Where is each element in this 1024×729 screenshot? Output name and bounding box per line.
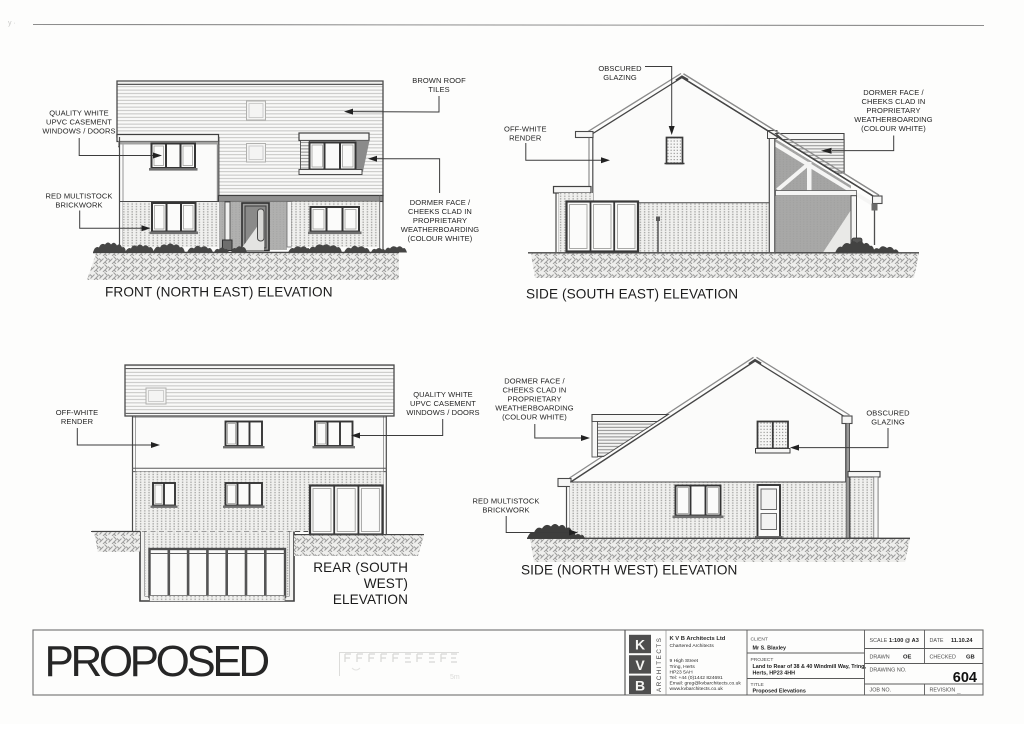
svg-text:SIDE (SOUTH EAST) ELEVATION: SIDE (SOUTH EAST) ELEVATION: [526, 287, 738, 302]
svg-text:WEATHERBOARDING: WEATHERBOARDING: [495, 403, 574, 412]
svg-text:REVISION: REVISION: [930, 688, 956, 694]
svg-text:SIDE (NORTH WEST) ELEVATION: SIDE (NORTH WEST) ELEVATION: [521, 563, 737, 578]
svg-text:_: _: [956, 688, 961, 695]
svg-text:(COLOUR WHITE): (COLOUR WHITE): [861, 124, 926, 133]
svg-text:DRAWN: DRAWN: [870, 655, 890, 661]
svg-text:QUALITY WHITE: QUALITY WHITE: [413, 390, 473, 399]
svg-text:QUALITY WHITE: QUALITY WHITE: [49, 108, 109, 117]
svg-text:11.10.24: 11.10.24: [951, 638, 973, 644]
svg-text:BROWN ROOF: BROWN ROOF: [412, 76, 466, 85]
svg-text:DORMER FACE /: DORMER FACE /: [863, 88, 924, 97]
svg-text:5m: 5m: [450, 674, 460, 681]
svg-text:CLIENT: CLIENT: [751, 637, 768, 643]
svg-text:RED MULTISTOCK: RED MULTISTOCK: [473, 496, 540, 505]
svg-text:WINDOWS / DOORS: WINDOWS / DOORS: [406, 408, 479, 417]
svg-text:DORMER FACE /: DORMER FACE /: [504, 376, 565, 385]
svg-text:PROPRIETARY: PROPRIETARY: [413, 216, 467, 225]
svg-text:Tel: +44 (0)1442 824691: Tel: +44 (0)1442 824691: [670, 675, 723, 681]
svg-text:REAR (SOUTH: REAR (SOUTH: [313, 560, 408, 575]
svg-text:K V B Architects Ltd: K V B Architects Ltd: [670, 636, 726, 642]
svg-text:DORMER FACE /: DORMER FACE /: [410, 198, 471, 207]
svg-text:RED MULTISTOCK: RED MULTISTOCK: [46, 191, 113, 200]
svg-text:PROJECT: PROJECT: [751, 657, 774, 663]
svg-text:CHECKED: CHECKED: [930, 655, 956, 661]
svg-text:BRICKWORK: BRICKWORK: [482, 505, 529, 514]
svg-text:CHEEKS CLAD IN: CHEEKS CLAD IN: [862, 97, 926, 106]
svg-text:UPVC CASEMENT: UPVC CASEMENT: [46, 117, 112, 126]
svg-text:OBSCURED: OBSCURED: [598, 64, 642, 73]
svg-text:DRAWING NO.: DRAWING NO.: [870, 668, 907, 674]
svg-text:Proposed Elevations: Proposed Elevations: [753, 689, 806, 695]
svg-text:CHEEKS CLAD IN: CHEEKS CLAD IN: [408, 207, 472, 216]
svg-text:Chartered Architects: Chartered Architects: [670, 643, 715, 649]
svg-text:www.kvbarchitects.co.uk: www.kvbarchitects.co.uk: [670, 686, 724, 692]
svg-text:PROPOSED: PROPOSED: [45, 637, 269, 686]
svg-text:WEATHERBOARDING: WEATHERBOARDING: [401, 225, 480, 234]
svg-text:WEATHERBOARDING: WEATHERBOARDING: [854, 115, 933, 124]
svg-text:K: K: [635, 637, 645, 653]
svg-text:Email: greg@kvbarchitects.co.u: Email: greg@kvbarchitects.co.uk: [670, 681, 742, 687]
svg-text:9 High Street: 9 High Street: [670, 658, 699, 664]
svg-text:CHEEKS CLAD IN: CHEEKS CLAD IN: [503, 385, 567, 394]
svg-text:TILES: TILES: [428, 85, 449, 94]
svg-text:OE: OE: [903, 655, 912, 661]
svg-text:DATE: DATE: [930, 638, 944, 644]
svg-text:JOB NO.: JOB NO.: [870, 688, 892, 694]
svg-text:Land to Rear of 38 & 40 Windmi: Land to Rear of 38 & 40 Windmill Way, Tr…: [753, 664, 867, 670]
svg-text:PROPRIETARY: PROPRIETARY: [507, 394, 561, 403]
svg-text:1:100 @ A3: 1:100 @ A3: [889, 638, 919, 644]
svg-text:RENDER: RENDER: [509, 134, 542, 143]
svg-text:Tring, Herts: Tring, Herts: [670, 664, 696, 670]
svg-text:BRICKWORK: BRICKWORK: [55, 200, 102, 209]
svg-text:GLAZING: GLAZING: [603, 73, 637, 82]
svg-text:V: V: [635, 657, 645, 673]
svg-text:(COLOUR WHITE): (COLOUR WHITE): [408, 234, 473, 243]
svg-text:y ·: y ·: [8, 20, 16, 27]
svg-text:WEST): WEST): [364, 576, 408, 591]
svg-text:OFF-WHITE: OFF-WHITE: [504, 125, 547, 134]
svg-text:TITLE: TITLE: [751, 682, 765, 688]
svg-text:RENDER: RENDER: [61, 417, 94, 426]
svg-text:WINDOWS / DOORS: WINDOWS / DOORS: [42, 126, 115, 135]
svg-text:(COLOUR WHITE): (COLOUR WHITE): [502, 412, 567, 421]
svg-text:PROPRIETARY: PROPRIETARY: [866, 106, 920, 115]
svg-text:FRONT (NORTH EAST) ELEVATION: FRONT (NORTH EAST) ELEVATION: [105, 285, 333, 300]
svg-text:Herts, HP23 4HH: Herts, HP23 4HH: [753, 671, 796, 677]
svg-text:B: B: [635, 677, 645, 693]
svg-text:OFF-WHITE: OFF-WHITE: [56, 408, 99, 417]
svg-text:ARCHITECTS: ARCHITECTS: [656, 636, 663, 692]
svg-text:OBSCURED: OBSCURED: [866, 408, 910, 417]
svg-text:HP23 5AH: HP23 5AH: [670, 670, 694, 676]
svg-text:Mr S. Blaxley: Mr S. Blaxley: [753, 646, 787, 652]
svg-text:UPVC CASEMENT: UPVC CASEMENT: [410, 399, 476, 408]
svg-text:SCALE: SCALE: [870, 638, 888, 644]
svg-text:GLAZING: GLAZING: [871, 418, 905, 427]
svg-text:ELEVATION: ELEVATION: [333, 592, 408, 607]
svg-text:GB: GB: [966, 655, 975, 661]
